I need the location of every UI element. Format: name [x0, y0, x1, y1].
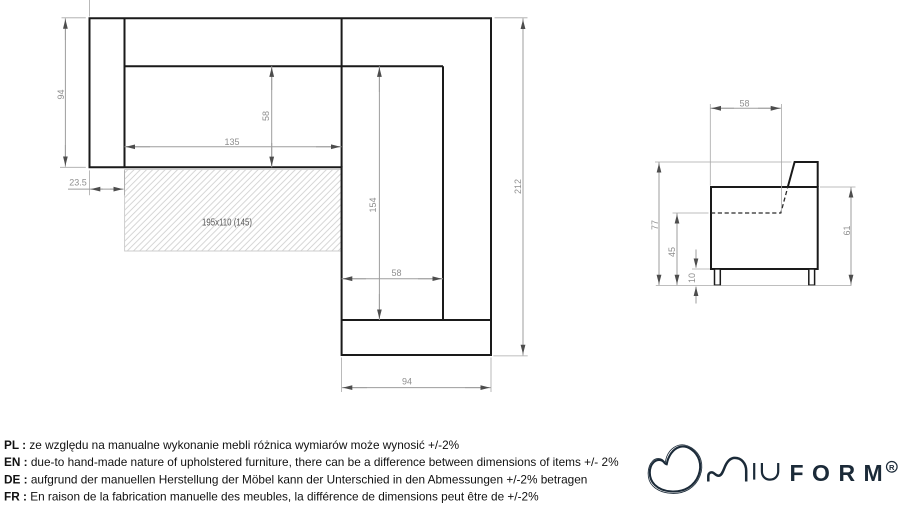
svg-text:PL : ze względu na manualne wy: PL : ze względu na manualne wykonanie me… — [4, 438, 460, 452]
svg-text:R: R — [889, 463, 895, 472]
svg-text:94: 94 — [402, 377, 412, 387]
svg-text:10: 10 — [687, 273, 697, 283]
svg-text:58: 58 — [391, 268, 401, 278]
svg-text:FORM: FORM — [790, 460, 892, 486]
svg-text:58: 58 — [261, 111, 271, 121]
svg-text:154: 154 — [368, 197, 378, 212]
svg-text:135: 135 — [224, 137, 239, 147]
svg-text:212: 212 — [513, 179, 523, 194]
svg-text:94: 94 — [56, 89, 66, 99]
svg-text:EN : due-to hand-made nature o: EN : due-to hand-made nature of upholste… — [4, 455, 619, 469]
svg-text:195x110 (145): 195x110 (145) — [202, 216, 252, 228]
svg-text:45: 45 — [667, 247, 677, 257]
svg-text:58: 58 — [739, 99, 749, 109]
svg-text:77: 77 — [650, 220, 660, 230]
svg-text:DE : aufgrund der manuellen He: DE : aufgrund der manuellen Herstellung … — [4, 472, 587, 486]
svg-text:61: 61 — [842, 225, 852, 235]
svg-text:FR : En raison de la fabricati: FR : En raison de la fabrication manuell… — [4, 490, 539, 504]
svg-text:23.5: 23.5 — [69, 178, 87, 188]
